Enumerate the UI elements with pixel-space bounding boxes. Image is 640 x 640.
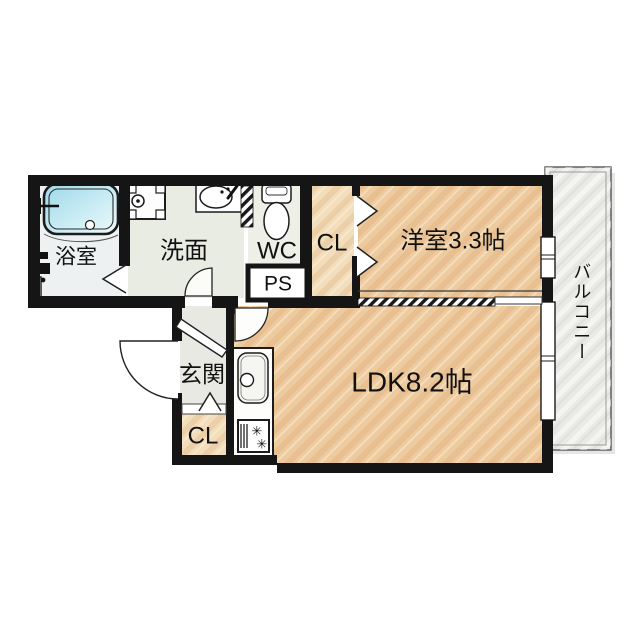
stove: ✳ ✳ [238, 420, 269, 452]
wall-left [28, 175, 40, 308]
floorplan-svg: バルコニー [0, 0, 640, 640]
wall-bath-bottom [28, 296, 185, 308]
wall-hatched-washroom-wc [241, 186, 253, 227]
closet-entrance-label: CL [188, 422, 219, 449]
bathroom-label: 浴室 [55, 246, 97, 269]
wall-bottom-left [172, 455, 277, 465]
ldk-label: LDK8.2帖 [351, 366, 472, 397]
sliding-door-leaf [358, 298, 495, 306]
wall-top [28, 175, 553, 186]
tub-drain [86, 221, 95, 230]
sink-drain [241, 374, 254, 387]
wall-bottom-right [277, 463, 553, 473]
washer-pan [127, 184, 165, 219]
wash-basin [196, 182, 242, 212]
sliding-door-track [495, 297, 542, 304]
toilet [262, 184, 291, 240]
western-room-label: 洋室3.3帖 [400, 227, 505, 254]
western-room-window [541, 237, 555, 278]
balcony-label: バルコニー [571, 262, 591, 362]
windows [541, 237, 555, 420]
kitchen-counter: ✳ ✳ [233, 348, 273, 460]
wc-label: WC [257, 237, 297, 264]
wall-bath-washroom [119, 186, 130, 266]
wall-entrance-left-lower [172, 393, 182, 465]
washroom-label: 洗面 [160, 237, 208, 264]
pipe-space-label: PS [264, 273, 292, 296]
front-door [120, 341, 178, 399]
wall-right-2 [542, 278, 553, 302]
stove-burner-icon: ✳ [257, 436, 268, 451]
wall-closet-west-upper [352, 186, 360, 196]
entrance-label: 玄関 [179, 361, 225, 387]
wall-right-1 [542, 175, 553, 237]
floorplan-canvas: バルコニー [0, 0, 640, 640]
closet-upper-label: CL [317, 229, 348, 256]
wall-kitchen-left [226, 308, 234, 461]
